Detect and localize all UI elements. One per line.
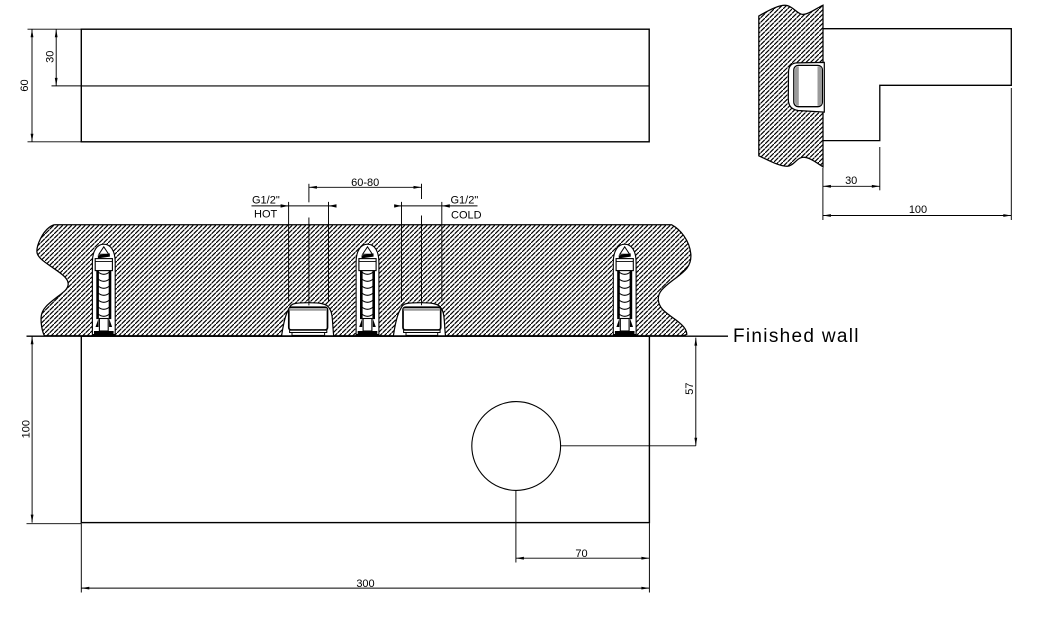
svg-text:60: 60 bbox=[19, 79, 31, 91]
svg-text:HOT: HOT bbox=[254, 209, 278, 221]
svg-text:COLD: COLD bbox=[451, 210, 482, 222]
svg-text:60-80: 60-80 bbox=[351, 177, 379, 189]
svg-text:Finished wall: Finished wall bbox=[733, 326, 859, 347]
svg-text:70: 70 bbox=[575, 548, 587, 560]
svg-text:30: 30 bbox=[845, 175, 857, 187]
svg-text:57: 57 bbox=[684, 382, 696, 394]
svg-text:G1/2": G1/2" bbox=[252, 195, 280, 207]
svg-text:100: 100 bbox=[909, 204, 927, 216]
svg-text:30: 30 bbox=[44, 51, 56, 63]
svg-text:G1/2": G1/2" bbox=[451, 195, 479, 207]
svg-text:300: 300 bbox=[356, 578, 374, 590]
svg-text:100: 100 bbox=[20, 420, 32, 438]
